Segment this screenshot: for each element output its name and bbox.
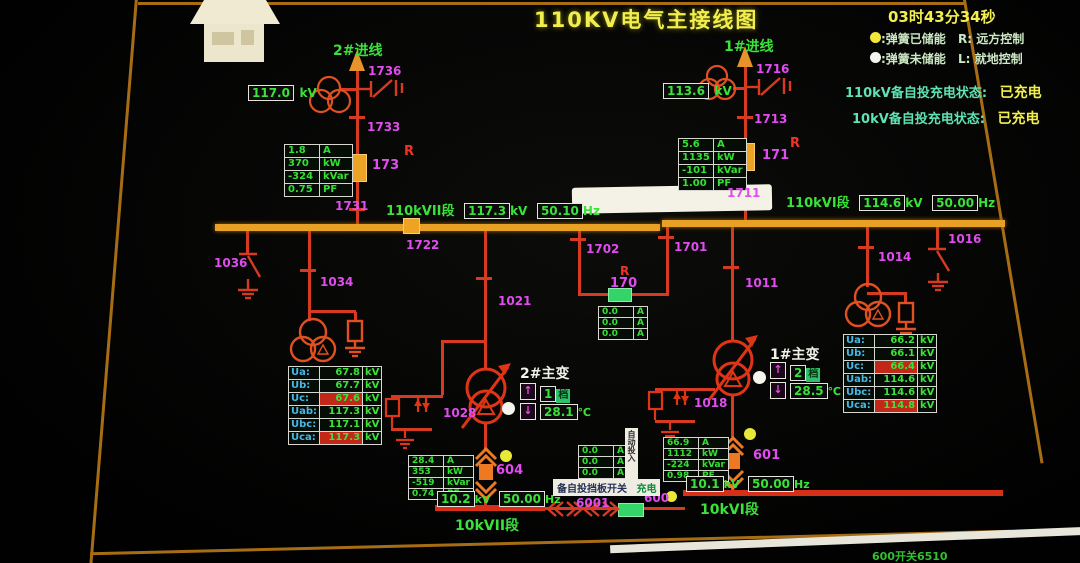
disconnector-1713[interactable] [737,116,753,119]
unit: kV [363,380,382,393]
unit: kW [699,449,729,460]
bus-ii-name: 110kVII段 [386,204,455,219]
label-1011: 1011 [745,276,778,290]
lv-bus-ii-name: 10kVII段 [455,515,519,535]
unit: kV [363,419,382,432]
feeder2-kv-box[interactable]: 117.0 [248,85,294,101]
unit: kV [918,387,937,400]
unit: kV [918,348,937,361]
feeder2-voltage: 117.0 kV [248,82,317,101]
busii-fuse-drop [354,312,357,322]
arrester-1018-top [655,388,715,391]
tx2-tap-raise-button[interactable]: ↑ [520,383,536,400]
lv-i-hz[interactable]: 50.00 [748,476,794,492]
legend-local-label: L: 就地控制 [958,52,1023,66]
feeder2-kv-unit: kV [300,86,317,100]
lbl: Uca: [289,432,320,445]
val: 1.00 [679,178,714,191]
feeder1-voltage: 113.6 kV [663,80,732,99]
tx1-tap-row: 2档 [790,362,820,382]
ats-banner-state: 充电 [636,484,656,495]
label-170: 170 [610,276,637,291]
label-171-remote: R [790,136,800,151]
bus-ii-voltage-table: Ua:67.8kV Ub:67.7kV Uc:67.6kV Uab:117.3k… [288,366,382,445]
page-title: 110KV电气主接线图 [534,4,758,34]
feeder2-name: 2#进线 [333,40,382,60]
bus-tie-meter: 0.0A 0.0A 0.0A [598,306,648,340]
unit: kV [918,374,937,387]
label-1014: 1014 [878,250,911,264]
status-10kv-ats: 10kV备自投充电状态: 已充电 [852,108,1040,128]
label-1021: 1021 [498,294,531,308]
bus-ii-hz[interactable]: 50.10 [537,203,583,219]
lv-tie-line [545,507,685,510]
val: 5.6 [679,139,714,152]
tx2-temp-unit: ℃ [578,406,591,419]
label-1028: 1028 [443,406,476,420]
label-1733: 1733 [367,120,400,134]
home-icon[interactable] [190,0,280,62]
legend-charged-label: :弹簧已储能 [881,32,946,46]
val: 67.8 [320,367,363,380]
feeder1-meter: 5.6A 1135kW -101kVar 1.00PF [678,138,747,191]
bus-i-pt-fuse-icon [896,303,916,337]
val: 353 [409,467,444,478]
val: 66.1 [875,348,918,361]
unit: A [699,438,729,449]
unit: kV [363,393,382,406]
bus-i-name: 110kVI段 [786,196,850,211]
label-1016: 1016 [948,232,981,246]
val: 0.0 [599,307,634,318]
tx2-tap-value: 1 [540,386,556,402]
lv-bus-i-name: 10kVI段 [700,499,759,519]
disconnector-1733[interactable] [349,116,365,119]
ats-banner: 备自投挡板开关 充电 [553,479,660,496]
footer-text: 600开关6510 [872,548,948,563]
feeder2-meter: 1.8A 370kW -324kVar 0.75PF [284,144,353,197]
label-1713: 1713 [754,112,787,126]
disconnector-1014[interactable] [858,246,874,249]
arrester-1028-top [391,395,443,398]
transformer1-icon[interactable] [709,335,758,400]
status-10kv-label: 10kV备自投充电状态: [852,112,985,127]
scada-screen: 110KV电气主接线图 03时43分34秒 :弹簧已储能 R: 远方控制 :弹簧… [0,0,1080,563]
feeder1-kv-box[interactable]: 113.6 [663,83,709,99]
busi-fuse-link [867,292,907,295]
arrester-1028-bottom [391,428,432,431]
lbl: Ubc: [289,419,320,432]
lbl: Ub: [289,380,320,393]
unit: A [444,456,474,467]
lv-bus-ii-voltage: 10.2kV 50.00Hz [437,488,561,507]
bus-ii-pt-icon[interactable] [291,319,335,361]
label-1034: 1034 [320,275,353,289]
val: 1.8 [285,145,320,158]
lv-i-kv[interactable]: 10.1 [686,476,724,492]
unit: kW [444,467,474,478]
lv-aux-meter: 0.0A 0.0A 0.0A [578,445,628,479]
label-604: 604 [496,463,523,478]
lbl: Ubc: [844,387,875,400]
label-1736: 1736 [368,64,401,78]
lbl: Ua: [289,367,320,380]
label-1711: 1711 [727,186,760,200]
val: 117.3 [320,406,363,419]
val: 1135 [679,152,714,165]
label-1702: 1702 [586,242,619,256]
unit: kVar [444,478,474,489]
label-1036: 1036 [214,256,247,270]
tx2-arrester-drop [441,340,444,395]
status-110kv-label: 110kV备自投充电状态: [845,86,987,101]
ats-softstrap-tag: 自动投入 [625,428,638,484]
lv-ii-hz[interactable]: 50.00 [499,491,545,507]
val: 370 [285,158,320,171]
val: 117.3 [320,432,363,445]
legend-row-uncharged: :弹簧未储能 L: 就地控制 [870,50,1023,67]
val: 0.0 [579,446,614,457]
tx2-tap-row: 1档 [540,383,570,403]
feeder2-pt-link [340,88,357,91]
arrester-1018-icon [649,390,689,440]
label-1018: 1018 [694,396,727,410]
lbl: Uc: [844,361,875,374]
unit: kV [363,432,382,445]
lv-i-kv-unit: kV [724,478,740,491]
tx2-hv-line [484,231,487,369]
val: 67.6 [320,393,363,406]
val: -519 [409,478,444,489]
tx2-temp-value: 28.1 [540,404,578,420]
feeder1-pt-link [733,87,746,90]
bus-i-kv[interactable]: 114.6 [859,195,905,211]
unit: A [714,139,747,152]
lbl: Uc: [289,393,320,406]
bus-ii-pt-fuse-icon [345,321,365,356]
breaker-1722[interactable] [403,218,420,234]
val: 0.0 [579,468,614,479]
tx2-lv-line [484,424,487,450]
bus-i-caption: 110kVI段 114.6kV 50.00Hz [786,192,995,211]
unit: kVar [714,165,747,178]
unit: A [634,318,648,329]
line-1036 [246,231,249,253]
lv-bus-i-voltage: 10.1kV 50.00Hz [686,473,810,492]
lbl: Uab: [289,406,320,419]
unit: A [634,329,648,340]
feeder1-name: 1#进线 [724,36,773,56]
unit: kV [918,400,937,413]
lbl: Ua: [844,335,875,348]
val: -101 [679,165,714,178]
val: 66.2 [875,335,918,348]
tx1-tap-raise-button[interactable]: ↑ [770,362,786,379]
tx2-tap-lower-button[interactable]: ↓ [520,403,536,420]
unit: kV [918,361,937,374]
val: 0.0 [599,318,634,329]
val: 114.8 [875,400,918,413]
status-10kv-value: 已充电 [998,111,1040,127]
tx1-name: 1#主变 [770,344,819,364]
tx1-tap-value: 2 [790,365,806,381]
clock: 03时43分34秒 [888,6,996,27]
bus-110kv-ii[interactable] [215,224,660,231]
label-173-remote: R [404,144,414,159]
disconnector-1034[interactable] [300,269,316,272]
bus-110kv-i[interactable] [662,220,1005,227]
val: 66.9 [664,438,699,449]
spring-uncharged-icon [870,52,881,63]
val: 0.0 [579,457,614,468]
lv-ii-kv-unit: kV [475,493,491,506]
disconnector-1011[interactable] [723,266,739,269]
lv-i-hz-unit: Hz [794,478,810,491]
val: -324 [285,171,320,184]
label-171: 171 [762,148,789,163]
label-6001: 6001 [576,496,609,510]
unit: PF [320,184,353,197]
tx1-temp-value: 28.5 [790,383,828,399]
unit: kV [918,335,937,348]
lv-ii-kv[interactable]: 10.2 [437,491,475,507]
val: 114.6 [875,374,918,387]
unit: kVar [699,460,729,471]
status-110kv-value: 已充电 [1000,85,1042,101]
unit: kW [714,152,747,165]
breaker-600[interactable] [618,503,644,517]
val: 0.75 [285,184,320,197]
line-1016 [936,227,939,249]
bus-ii-caption: 110kVII段 117.3kV 50.10Hz [386,200,600,219]
busii-fuse-link [310,310,356,313]
line-switch-1736-icon[interactable] [359,80,402,97]
legend-row-charged: :弹簧已储能 R: 远方控制 [870,30,1024,47]
unit: kV [363,367,382,380]
label-1716: 1716 [756,62,789,76]
breaker-601-spring [744,428,756,440]
label-601: 601 [753,448,780,463]
val: 1112 [664,449,699,460]
line-1034 [308,231,311,321]
unit: kVar [320,171,353,184]
val: 114.6 [875,387,918,400]
tx2-spring-indicator [502,402,515,415]
tx2-temp-row: 28.1℃ [540,401,591,420]
val: 0.0 [599,329,634,340]
legend-remote-label: R: 远方控制 [958,32,1024,46]
label-1701: 1701 [674,240,707,254]
earth-switch-1016-icon[interactable] [928,249,949,290]
disconnector-1701[interactable] [658,236,674,239]
val: 67.7 [320,380,363,393]
label-1731: 1731 [335,199,368,213]
tx2-name: 2#主变 [520,363,569,383]
bus-i-hz-unit: Hz [978,196,995,210]
unit: A [320,145,353,158]
unit: kV [363,406,382,419]
busi-fuse-drop [904,294,907,303]
tx1-lv-line [731,395,734,437]
status-110kv-ats: 110kV备自投充电状态: 已充电 [845,82,1042,102]
unit: A [634,307,648,318]
tx1-tap-lower-button[interactable]: ↓ [770,382,786,399]
lbl: Uca: [844,400,875,413]
arrester-1018-bottom [655,420,695,423]
lbl: Ub: [844,348,875,361]
val: 66.4 [875,361,918,374]
arrester-1028-icon [386,397,430,448]
bus-ii-kv[interactable]: 117.3 [464,203,510,219]
tx1-hv-line [731,227,734,341]
disconnector-1702[interactable] [570,238,586,241]
unit: kW [320,158,353,171]
breaker-604-spring [500,450,512,462]
tx2-arrester-link [441,340,486,343]
ats-banner-label: 备自投挡板开关 [557,484,627,495]
bus-i-kv-unit: kV [905,196,922,210]
legend-uncharged-label: :弹簧未储能 [881,52,946,66]
label-173: 173 [372,158,399,173]
spring-charged-icon [870,32,881,43]
val: 28.4 [409,456,444,467]
bus-i-voltage-table: Ua:66.2kV Ub:66.1kV Uc:66.4kV Uab:114.6k… [843,334,937,413]
val: -224 [664,460,699,471]
feeder1-kv-unit: kV [715,84,732,98]
val: 117.1 [320,419,363,432]
bus-ii-kv-unit: kV [510,204,527,218]
line-switch-1716-icon[interactable] [747,78,790,95]
bus-i-pt-icon[interactable] [846,284,890,326]
tx1-temp-unit: ℃ [828,385,841,398]
line-1014 [866,227,869,287]
bus-ii-hz-unit: Hz [583,204,600,218]
label-1722: 1722 [406,238,439,252]
tx1-temp-row: 28.5℃ [790,380,841,399]
frame-left [88,0,139,563]
bus-i-hz[interactable]: 50.00 [932,195,978,211]
tx1-spring-indicator [753,371,766,384]
lbl: Uab: [844,374,875,387]
disconnector-1021[interactable] [476,277,492,280]
